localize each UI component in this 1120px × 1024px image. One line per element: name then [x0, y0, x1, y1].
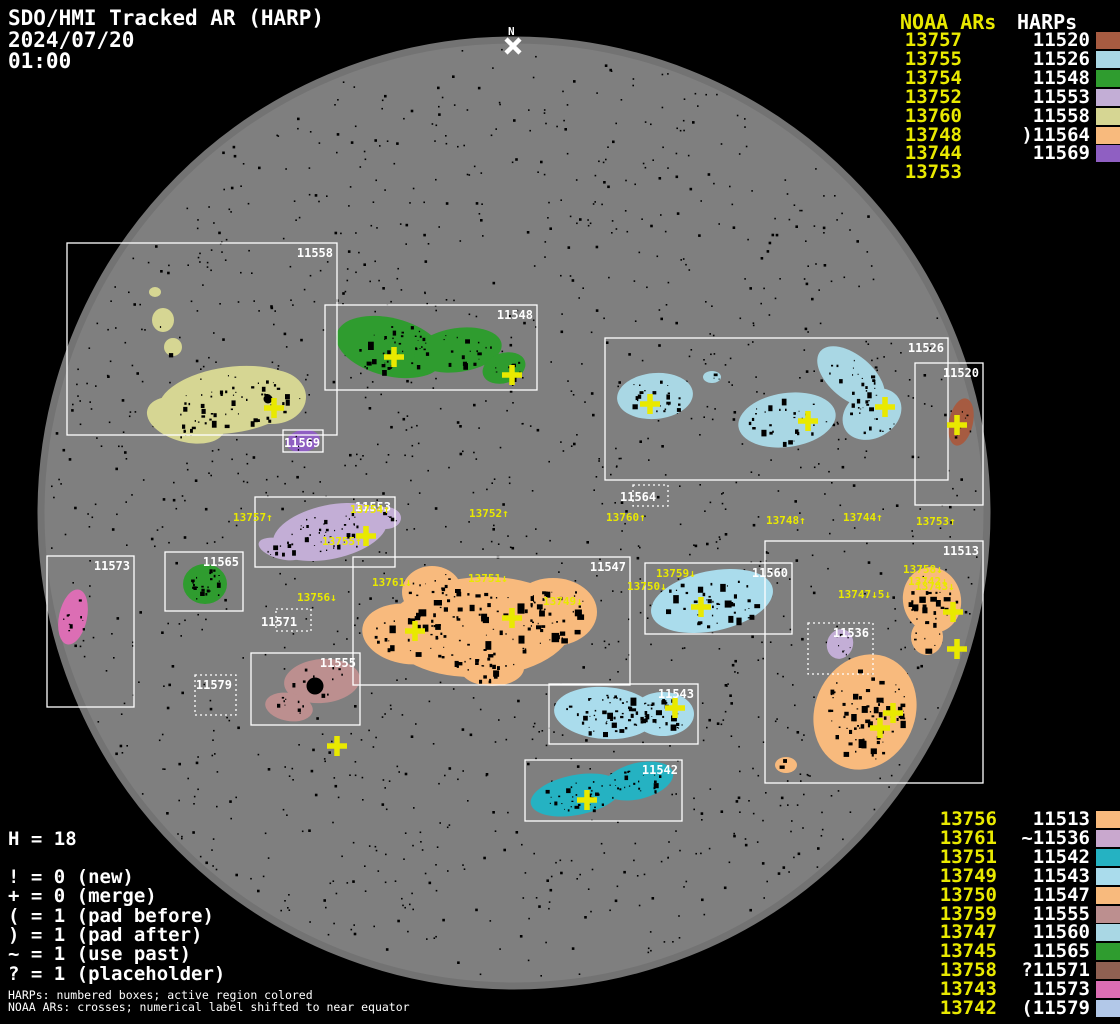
harp-box-label-11536: 11536 [833, 626, 869, 640]
harp-color-swatch [1096, 943, 1120, 960]
harp-color-swatch [1096, 906, 1120, 923]
legend-merge: + = 0 (merge) [8, 887, 157, 906]
harp-color-swatch [1096, 981, 1120, 998]
harp-box-label-11571: 11571 [261, 615, 297, 629]
noaa-harp-row: 13742(11579 [890, 999, 1120, 1018]
noaa-harp-row: 1375111542 [890, 848, 1120, 867]
legend-pad-before: ( = 1 (pad before) [8, 907, 214, 926]
harp-number: 11543 [997, 867, 1090, 886]
sdo-hmi-harp-plot: 1155811548115261152011569115641155311513… [0, 0, 1120, 1024]
legend-pad-after: ) = 1 (pad after) [8, 926, 202, 945]
page-title: SDO/HMI Tracked AR (HARP) [8, 8, 324, 29]
noaa-ar-number: 13751 [890, 848, 997, 867]
harp-box-label-11558: 11558 [297, 246, 333, 260]
harp-box-label-11548: 11548 [497, 308, 533, 322]
noaa-ar-number: 13749 [890, 867, 997, 886]
harp-color-swatch [1096, 1000, 1120, 1017]
noaa-harp-row: 1374911543 [890, 867, 1120, 886]
north-marker-label: N [508, 26, 515, 37]
harp-box-label-11569: 11569 [284, 436, 320, 450]
harp-box-label-11547: 11547 [590, 560, 626, 574]
observation-date: 2024/07/20 [8, 30, 134, 51]
harp-color-swatch [1096, 849, 1120, 866]
harp-count: H = 18 [8, 830, 77, 849]
harp-color-swatch [1096, 830, 1120, 847]
bottom-noaa-harp-list: 137561151313761~115361375111542137491154… [890, 0, 1120, 1024]
harp-number: 11547 [997, 886, 1090, 905]
noaa-harp-row: 1375011547 [890, 886, 1120, 905]
observation-time: 01:00 [8, 51, 71, 72]
noaa-ar-number: 13742 [890, 999, 997, 1018]
legend-new: ! = 0 (new) [8, 868, 134, 887]
noaa-ar-number: 13750 [890, 886, 997, 905]
harp-box-label-11579: 11579 [196, 678, 232, 692]
harp-number: (11579 [997, 999, 1090, 1018]
harp-color-swatch [1096, 811, 1120, 828]
footnote-noaa: NOAA ARs: crosses; numerical label shift… [8, 1002, 410, 1014]
harp-color-swatch [1096, 924, 1120, 941]
legend-use-past: ~ = 1 (use past) [8, 945, 191, 964]
harp-box-label-11560: 11560 [752, 566, 788, 580]
harp-color-swatch [1096, 887, 1120, 904]
harp-box-label-11555: 11555 [320, 656, 356, 670]
legend-placeholder: ? = 1 (placeholder) [8, 965, 225, 984]
harp-number: 11542 [997, 848, 1090, 867]
harp-box-label-11564: 11564 [620, 490, 656, 504]
harp-box-label-11573: 11573 [94, 559, 130, 573]
harp-color-swatch [1096, 962, 1120, 979]
harp-box-label-11565: 11565 [203, 555, 239, 569]
harp-box-label-11553: 11553 [355, 500, 391, 514]
harp-box-label-11542: 11542 [642, 763, 678, 777]
harp-color-swatch [1096, 868, 1120, 885]
